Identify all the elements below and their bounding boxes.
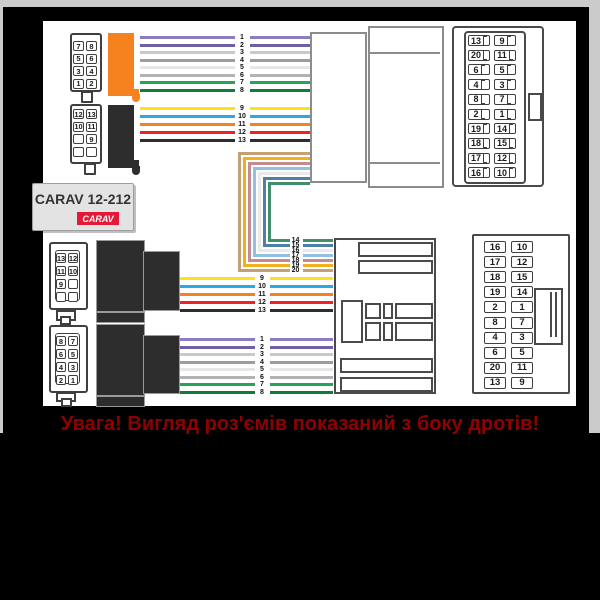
wire-2-number: 2 bbox=[255, 344, 269, 351]
pin-number: 9 bbox=[519, 377, 524, 388]
wire-10-number: 10 bbox=[255, 283, 269, 290]
pin-number: 1 bbox=[519, 302, 524, 313]
wire-5-right bbox=[270, 368, 333, 371]
pin-2: 2 bbox=[56, 375, 66, 385]
pin-5: 5 bbox=[68, 349, 78, 359]
wire-16-loop-top bbox=[258, 172, 310, 175]
wire-7-number: 7 bbox=[235, 79, 249, 86]
pin-clip-icon bbox=[481, 80, 485, 90]
pin-11: 11 bbox=[56, 266, 66, 276]
pin-number: 11 bbox=[497, 50, 507, 60]
pin-4: 4 bbox=[484, 332, 506, 344]
wire-6-right bbox=[250, 74, 310, 77]
pin-7: 7 bbox=[511, 317, 533, 329]
wire-20-loop-bottom bbox=[238, 269, 290, 272]
pin-number: 7 bbox=[76, 42, 80, 51]
pin-13: 13 bbox=[86, 109, 97, 119]
pin-number: 13 bbox=[490, 377, 501, 388]
wire-4-number: 4 bbox=[255, 359, 269, 366]
pin-clip-icon bbox=[507, 80, 511, 90]
pin-number: 15 bbox=[497, 138, 507, 148]
pin-number: 8 bbox=[59, 337, 63, 346]
wire-14-loop-top bbox=[268, 182, 310, 185]
wire-5-number: 5 bbox=[255, 366, 269, 373]
wire-2-left bbox=[140, 44, 235, 47]
wire-9-right bbox=[270, 277, 333, 280]
pin-12: 12 bbox=[68, 253, 78, 263]
pin-15: 15 bbox=[494, 138, 516, 149]
black-housing-low-foot bbox=[96, 396, 145, 407]
orange-housing-body bbox=[108, 33, 134, 91]
pin-clip-icon bbox=[507, 94, 511, 104]
black-housing-mid-side bbox=[143, 251, 180, 311]
pin-number: 12 bbox=[74, 110, 82, 119]
pin-number: 8 bbox=[473, 94, 478, 104]
wire-13-left bbox=[180, 309, 255, 312]
wire-15-loop-bottom bbox=[263, 244, 290, 247]
pin-7: 7 bbox=[73, 41, 84, 51]
wire-13-right bbox=[270, 309, 333, 312]
connector-bottomright-tab-line2 bbox=[555, 292, 557, 337]
pin-9: 9 bbox=[511, 377, 533, 389]
pin-3: 3 bbox=[73, 66, 84, 76]
pin-10: 10 bbox=[68, 266, 78, 276]
pin-number: 19 bbox=[490, 287, 501, 298]
wire-3-left bbox=[180, 353, 255, 356]
wire-1-right bbox=[250, 36, 310, 39]
pin-number: 9 bbox=[89, 135, 93, 144]
pin-8: 8 bbox=[86, 41, 97, 51]
wire-20-loop-top bbox=[238, 152, 310, 155]
wire-5-left bbox=[180, 368, 255, 371]
black-housing-mid-foot bbox=[96, 312, 145, 323]
wire-10-left bbox=[180, 285, 255, 288]
pin-number: 6 bbox=[59, 350, 63, 359]
pin-clip-icon bbox=[507, 109, 511, 119]
wire-19-stub bbox=[303, 264, 333, 267]
quadlock-slot-1 bbox=[358, 242, 433, 257]
socket-divider-top bbox=[370, 52, 440, 54]
wire-10-right bbox=[270, 285, 333, 288]
pin-4: 4 bbox=[56, 362, 66, 372]
pin-4: 4 bbox=[468, 79, 490, 90]
wire-20-stub bbox=[303, 269, 333, 272]
black-housing-top-hook bbox=[132, 166, 140, 175]
wire-6-left bbox=[140, 74, 235, 77]
wire-1-left bbox=[180, 338, 255, 341]
connector-bottomright-tab bbox=[534, 288, 563, 345]
pin-20: 20 bbox=[468, 50, 490, 61]
pin-4: 4 bbox=[86, 66, 97, 76]
wire-18-stub bbox=[303, 259, 333, 262]
pin-2: 2 bbox=[86, 79, 97, 89]
wire-8-left bbox=[140, 89, 235, 92]
pin-clip-icon bbox=[483, 36, 487, 46]
wire-10-right bbox=[250, 115, 310, 118]
wire-15-stub bbox=[303, 244, 333, 247]
wire-8-right bbox=[250, 89, 310, 92]
wire-16-loop-vert bbox=[258, 172, 261, 252]
wire-12-left bbox=[180, 301, 255, 304]
socket-outline-left bbox=[310, 32, 367, 183]
wire-1-left bbox=[140, 36, 235, 39]
brand-badge: CARAV bbox=[77, 212, 119, 225]
wire-12-right bbox=[270, 301, 333, 304]
connector-topleft-10pin-tab bbox=[84, 163, 96, 175]
quadlock-slot-2 bbox=[358, 260, 433, 274]
pin-12: 12 bbox=[73, 109, 84, 119]
pin-6: 6 bbox=[468, 64, 490, 75]
pin-16: 16 bbox=[468, 167, 490, 178]
quadlock-cell-1 bbox=[365, 303, 381, 319]
pin-number: 18 bbox=[490, 272, 501, 283]
pin-20: 20 bbox=[484, 362, 506, 374]
wire-4-left bbox=[180, 361, 255, 364]
pin-empty bbox=[56, 292, 66, 302]
wire-4-right bbox=[250, 59, 310, 62]
frame-strip-left bbox=[0, 7, 3, 433]
pin-number: 5 bbox=[519, 347, 524, 358]
wire-3-left bbox=[140, 51, 235, 54]
pin-number: 10 bbox=[74, 122, 82, 131]
pin-5: 5 bbox=[494, 64, 516, 75]
pin-number: 14 bbox=[497, 124, 507, 134]
product-title: CARAV 12-212 bbox=[33, 191, 133, 207]
wire-13-left bbox=[140, 139, 235, 142]
pin-number: 10 bbox=[517, 242, 528, 253]
pin-number: 2 bbox=[473, 109, 478, 119]
pin-number: 14 bbox=[517, 287, 528, 298]
product-label-box: CARAV 12-212 CARAV bbox=[32, 183, 134, 231]
pin-13: 13 bbox=[56, 253, 66, 263]
pin-clip-icon bbox=[509, 50, 513, 60]
wire-13-right bbox=[250, 139, 310, 142]
wire-13-number: 13 bbox=[255, 307, 269, 314]
wire-6-number: 6 bbox=[235, 72, 249, 79]
pin-14: 14 bbox=[511, 286, 533, 298]
pin-clip-icon bbox=[483, 153, 487, 163]
pin-number: 7 bbox=[499, 94, 504, 104]
pin-number: 3 bbox=[76, 67, 80, 76]
connector-bottomleft-10pin-tab2 bbox=[60, 316, 71, 325]
pin-1: 1 bbox=[73, 79, 84, 89]
pin-number: 5 bbox=[71, 350, 75, 359]
connector-bottomleft-8pin-tab2 bbox=[61, 398, 72, 407]
pin-number: 12 bbox=[497, 153, 507, 163]
connector-topright-latch bbox=[528, 93, 542, 121]
quadlock-cell-2 bbox=[383, 303, 393, 319]
pin-number: 13 bbox=[57, 254, 65, 263]
pin-9: 9 bbox=[56, 279, 66, 289]
wire-17-loop-top bbox=[253, 167, 310, 170]
pin-2: 2 bbox=[484, 301, 506, 313]
pin-clip-icon bbox=[483, 50, 487, 60]
black-housing-low-side bbox=[143, 335, 180, 394]
pin-18: 18 bbox=[468, 138, 490, 149]
pin-clip-icon bbox=[509, 124, 513, 134]
wire-17-loop-bottom bbox=[253, 254, 290, 257]
pin-clip-icon bbox=[507, 36, 511, 46]
pin-number: 19 bbox=[471, 124, 481, 134]
pin-empty bbox=[68, 292, 78, 302]
pin-number: 20 bbox=[471, 50, 481, 60]
wire-20-loop-vert bbox=[238, 152, 241, 272]
pin-number: 8 bbox=[492, 317, 497, 328]
pin-number: 16 bbox=[490, 242, 501, 253]
wire-14-loop-vert bbox=[268, 182, 271, 242]
pin-number: 1 bbox=[499, 109, 504, 119]
wire-18-loop-bottom bbox=[248, 259, 290, 262]
pin-empty bbox=[73, 134, 84, 144]
pin-5: 5 bbox=[73, 54, 84, 64]
wiring-diagram: 1234567891011121391011121312345678201918… bbox=[0, 0, 600, 600]
pin-number: 2 bbox=[492, 302, 497, 313]
pin-7: 7 bbox=[494, 94, 516, 105]
pin-19: 19 bbox=[468, 123, 490, 134]
wire-19-loop-vert bbox=[243, 157, 246, 267]
pin-clip-icon bbox=[481, 94, 485, 104]
pin-number: 1 bbox=[76, 79, 80, 88]
wire-9-right bbox=[250, 107, 310, 110]
pin-1: 1 bbox=[68, 375, 78, 385]
pin-number: 9 bbox=[59, 280, 63, 289]
black-housing-mid-body bbox=[96, 240, 145, 312]
pin-empty bbox=[86, 147, 97, 157]
wire-6-right bbox=[270, 376, 333, 379]
wire-19-loop-top bbox=[243, 157, 310, 160]
pin-number: 4 bbox=[492, 332, 497, 343]
pin-17: 17 bbox=[484, 256, 506, 268]
wire-19-loop-bottom bbox=[243, 264, 290, 267]
wire-2-left bbox=[180, 346, 255, 349]
quadlock-cell-4 bbox=[365, 322, 381, 341]
pin-number: 1 bbox=[71, 376, 75, 385]
wire-8-number: 8 bbox=[235, 87, 249, 94]
wire-11-right bbox=[270, 293, 333, 296]
wire-5-number: 5 bbox=[235, 64, 249, 71]
pin-number: 11 bbox=[517, 362, 527, 373]
pin-clip-icon bbox=[483, 124, 487, 134]
wire-3-right bbox=[250, 51, 310, 54]
wire-4-left bbox=[140, 59, 235, 62]
pin-number: 12 bbox=[517, 257, 528, 268]
pin-number: 7 bbox=[519, 317, 524, 328]
wire-7-right bbox=[270, 383, 333, 386]
pin-7: 7 bbox=[68, 336, 78, 346]
wire-4-number: 4 bbox=[235, 57, 249, 64]
pin-number: 18 bbox=[471, 138, 481, 148]
wire-14-stub bbox=[303, 239, 333, 242]
wire-17-loop-vert bbox=[253, 167, 256, 257]
pin-number: 10 bbox=[497, 168, 507, 178]
wire-11-number: 11 bbox=[235, 121, 249, 128]
wire-2-right bbox=[250, 44, 310, 47]
pin-clip-icon bbox=[509, 153, 513, 163]
pin-9: 9 bbox=[494, 35, 516, 46]
pin-clip-icon bbox=[509, 138, 513, 148]
connector-topleft-8pin-tab bbox=[81, 91, 93, 103]
pin-clip-icon bbox=[483, 168, 487, 178]
pin-15: 15 bbox=[511, 271, 533, 283]
pin-number: 10 bbox=[69, 267, 77, 276]
wire-10-number: 10 bbox=[235, 113, 249, 120]
pin-number: 9 bbox=[499, 36, 504, 46]
wire-16-loop-bottom bbox=[258, 249, 290, 252]
pin-number: 20 bbox=[490, 362, 501, 373]
pin-number: 11 bbox=[88, 122, 96, 131]
pin-11: 11 bbox=[86, 122, 97, 132]
pin-number: 6 bbox=[492, 347, 497, 358]
pin-1: 1 bbox=[511, 301, 533, 313]
pin-empty bbox=[68, 279, 78, 289]
black-housing-low-body bbox=[96, 324, 145, 396]
pin-11: 11 bbox=[494, 50, 516, 61]
wire-13-number: 13 bbox=[235, 137, 249, 144]
pin-6: 6 bbox=[484, 347, 506, 359]
wire-12-left bbox=[140, 131, 235, 134]
frame-strip-top bbox=[0, 0, 600, 7]
pin-number: 17 bbox=[490, 257, 501, 268]
wire-5-left bbox=[140, 66, 235, 69]
pin-6: 6 bbox=[56, 349, 66, 359]
pin-number: 4 bbox=[473, 80, 478, 90]
wire-3-right bbox=[270, 353, 333, 356]
wire-12-number: 12 bbox=[235, 129, 249, 136]
wire-2-number: 2 bbox=[235, 42, 249, 49]
wire-11-left bbox=[140, 123, 235, 126]
pin-8: 8 bbox=[468, 94, 490, 105]
pin-13: 13 bbox=[468, 35, 490, 46]
pin-number: 2 bbox=[59, 376, 63, 385]
pin-8: 8 bbox=[484, 317, 506, 329]
wire-9-number: 9 bbox=[255, 275, 269, 282]
pin-number: 7 bbox=[71, 337, 75, 346]
pin-clip-icon bbox=[509, 168, 513, 178]
quadlock-cell-6 bbox=[395, 322, 433, 341]
wire-15-loop-vert bbox=[263, 177, 266, 247]
wire-1-number: 1 bbox=[255, 336, 269, 343]
pin-19: 19 bbox=[484, 286, 506, 298]
wire-7-left bbox=[140, 81, 235, 84]
pin-number: 16 bbox=[471, 168, 481, 178]
wire-2-right bbox=[270, 346, 333, 349]
pin-5: 5 bbox=[511, 347, 533, 359]
pin-3: 3 bbox=[68, 362, 78, 372]
pin-3: 3 bbox=[511, 332, 533, 344]
pin-clip-icon bbox=[481, 65, 485, 75]
black-housing-top-body bbox=[108, 105, 134, 162]
quadlock-cell-5 bbox=[383, 322, 393, 341]
pin-number: 12 bbox=[69, 254, 77, 263]
wire-11-right bbox=[250, 123, 310, 126]
wire-3-number: 3 bbox=[255, 351, 269, 358]
pin-12: 12 bbox=[511, 256, 533, 268]
wire-15-loop-top bbox=[263, 177, 310, 180]
wire-12-number: 12 bbox=[255, 299, 269, 306]
pin-number: 17 bbox=[471, 153, 481, 163]
wire-14-number: 14 bbox=[289, 237, 302, 244]
wire-1-right bbox=[270, 338, 333, 341]
wire-6-left bbox=[180, 376, 255, 379]
pin-1: 1 bbox=[494, 109, 516, 120]
wire-18-loop-vert bbox=[248, 162, 251, 262]
pin-empty bbox=[73, 147, 84, 157]
pin-11: 11 bbox=[511, 362, 533, 374]
wire-18-loop-top bbox=[248, 162, 310, 165]
wire-16-stub bbox=[303, 249, 333, 252]
quadlock-key-block bbox=[341, 300, 363, 343]
pin-number: 5 bbox=[76, 54, 80, 63]
pin-number: 3 bbox=[519, 332, 524, 343]
wire-6-number: 6 bbox=[255, 374, 269, 381]
quadlock-cell-3 bbox=[395, 303, 433, 319]
pin-number: 13 bbox=[471, 36, 481, 46]
pin-clip-icon bbox=[483, 138, 487, 148]
pin-13: 13 bbox=[484, 377, 506, 389]
wire-17-stub bbox=[303, 254, 333, 257]
pin-clip-icon bbox=[507, 65, 511, 75]
pin-8: 8 bbox=[56, 336, 66, 346]
pin-10: 10 bbox=[511, 241, 533, 253]
wire-3-number: 3 bbox=[235, 49, 249, 56]
wire-11-number: 11 bbox=[255, 291, 269, 298]
wire-12-right bbox=[250, 131, 310, 134]
pin-clip-icon bbox=[481, 109, 485, 119]
warning-text: Увага! Вигляд роз'ємів показаний з боку … bbox=[0, 410, 600, 438]
pin-14: 14 bbox=[494, 123, 516, 134]
quadlock-slot-4 bbox=[340, 377, 433, 392]
frame-strip-right bbox=[589, 7, 600, 433]
pin-number: 11 bbox=[57, 267, 65, 276]
quadlock-slot-3 bbox=[340, 358, 433, 373]
pin-18: 18 bbox=[484, 271, 506, 283]
wire-10-left bbox=[140, 115, 235, 118]
wire-5-right bbox=[250, 66, 310, 69]
pin-number: 5 bbox=[499, 65, 504, 75]
pin-number: 8 bbox=[89, 42, 93, 51]
wire-8-number: 8 bbox=[255, 389, 269, 396]
wire-11-left bbox=[180, 293, 255, 296]
pin-number: 6 bbox=[89, 54, 93, 63]
pin-12: 12 bbox=[494, 153, 516, 164]
pin-3: 3 bbox=[494, 79, 516, 90]
orange-housing-hook bbox=[132, 94, 140, 102]
pin-10: 10 bbox=[494, 167, 516, 178]
pin-6: 6 bbox=[86, 54, 97, 64]
wire-9-left bbox=[140, 107, 235, 110]
pin-10: 10 bbox=[73, 122, 84, 132]
pin-number: 6 bbox=[473, 65, 478, 75]
connector-bottomright-tab-line1 bbox=[550, 292, 552, 337]
wire-1-number: 1 bbox=[235, 34, 249, 41]
pin-number: 4 bbox=[89, 67, 93, 76]
pin-2: 2 bbox=[468, 109, 490, 120]
wire-14-loop-bottom bbox=[268, 239, 290, 242]
pin-number: 4 bbox=[59, 363, 63, 372]
wire-4-right bbox=[270, 361, 333, 364]
wire-8-right bbox=[270, 391, 333, 394]
socket-divider-bottom bbox=[370, 162, 440, 164]
pin-number: 3 bbox=[499, 80, 504, 90]
wire-8-left bbox=[180, 391, 255, 394]
pin-9: 9 bbox=[86, 134, 97, 144]
wire-7-left bbox=[180, 383, 255, 386]
wire-7-right bbox=[250, 81, 310, 84]
pin-number: 15 bbox=[517, 272, 528, 283]
pin-number: 13 bbox=[87, 110, 95, 119]
wire-7-number: 7 bbox=[255, 381, 269, 388]
pin-17: 17 bbox=[468, 153, 490, 164]
